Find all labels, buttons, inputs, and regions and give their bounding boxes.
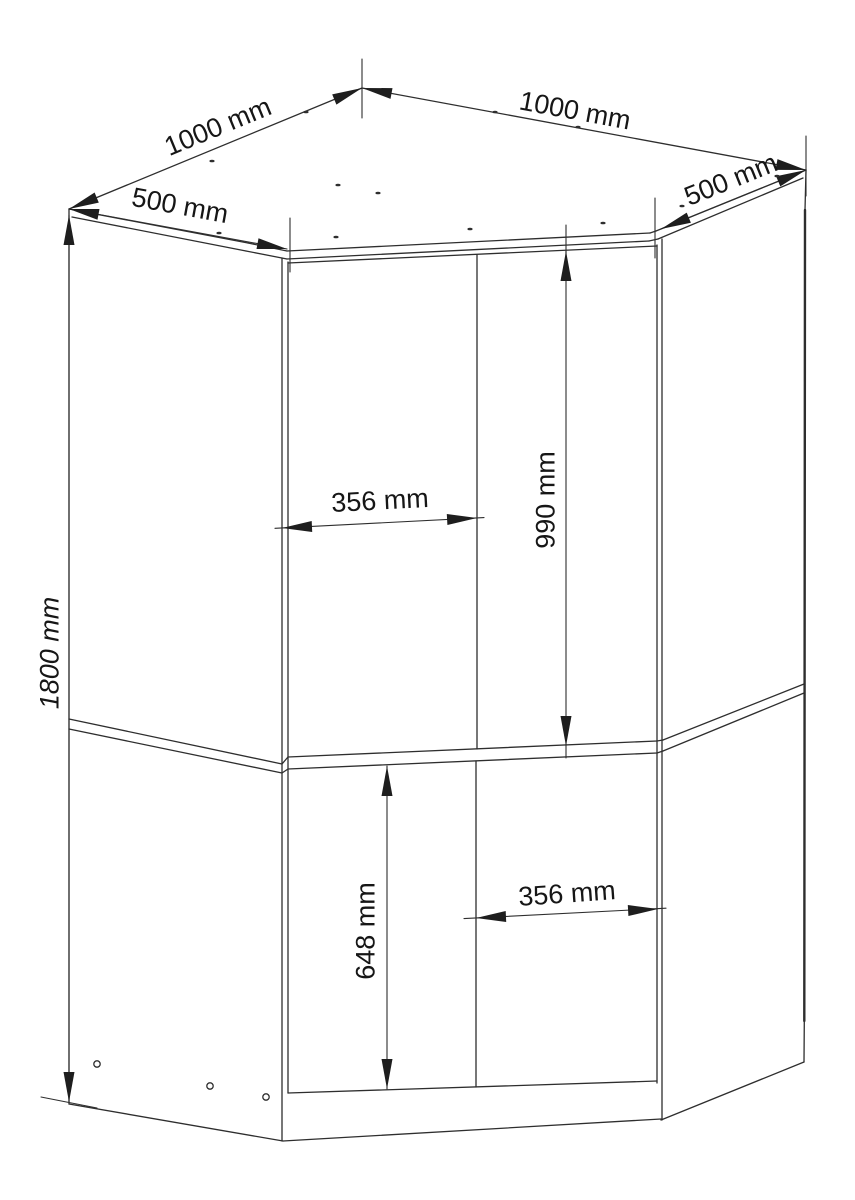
front-doors bbox=[282, 239, 663, 1141]
dim-label-lower-door-width: 356 mm bbox=[517, 877, 616, 911]
dim-label-overall-height: 1800 mm bbox=[37, 597, 64, 710]
left-side-panel bbox=[69, 209, 283, 1141]
drill-hole-marks bbox=[209, 111, 779, 239]
technical-drawing-canvas: 1000 mm 1000 mm 500 mm 500 mm 1800 mm 99… bbox=[0, 0, 855, 1200]
top-panel-outline bbox=[69, 88, 806, 259]
dim-label-lower-door-height: 648 mm bbox=[353, 882, 380, 980]
screw-hole-marks bbox=[94, 1061, 269, 1100]
right-side-panel bbox=[661, 170, 806, 1120]
dim-label-upper-door-width: 356 mm bbox=[331, 485, 430, 517]
dim-label-upper-door-height: 990 mm bbox=[533, 451, 560, 549]
dimension-arrowheads bbox=[64, 88, 807, 1102]
